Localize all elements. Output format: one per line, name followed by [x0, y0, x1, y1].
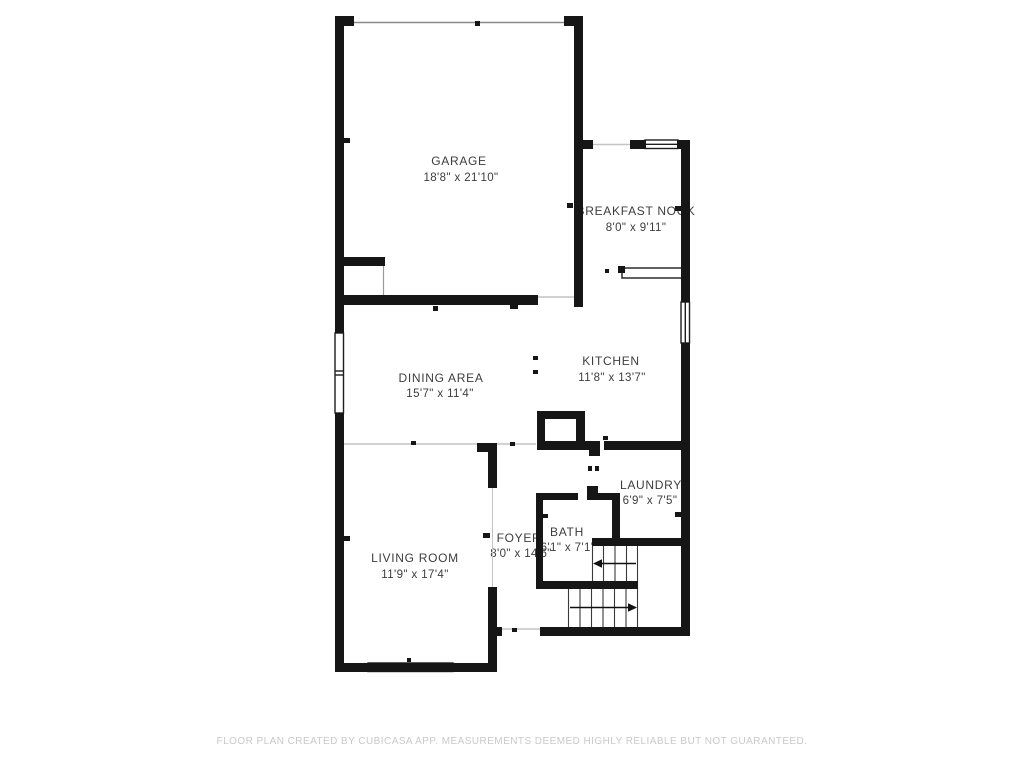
kitchen-south-wall — [604, 441, 690, 450]
tick-marker — [475, 21, 480, 26]
dining-label: DINING AREA — [398, 371, 483, 385]
wall-west — [335, 16, 344, 333]
laundry-south-wall — [592, 538, 690, 546]
living-south-wall — [335, 663, 497, 672]
tick-marker — [433, 306, 438, 311]
tick-marker — [563, 495, 567, 499]
tick-marker — [675, 206, 681, 211]
opening-lines — [344, 23, 630, 630]
tick-marker — [533, 356, 538, 360]
room-labels: GARAGE 18'8" x 21'10" BREAKFAST NOOK 8'0… — [371, 154, 695, 581]
tick-marker — [512, 628, 517, 632]
tick-marker — [510, 442, 515, 446]
tick-marker — [483, 533, 490, 538]
garage-dims: 18'8" x 21'10" — [423, 172, 498, 184]
door-hinge-dot — [595, 466, 599, 471]
bath-west-wall — [536, 493, 543, 588]
foyer-label: FOYER — [497, 531, 542, 545]
tick-marker — [648, 538, 653, 542]
dining-dims: 15'7" x 11'4" — [406, 388, 473, 400]
laundry-label: LAUNDRY — [620, 478, 682, 492]
nook-north-wall — [630, 140, 646, 149]
wall-east — [681, 140, 690, 302]
bath-east-wall — [612, 493, 620, 543]
tick-marker — [675, 512, 681, 517]
breakfast-nook-dims: 8'0" x 9'11" — [606, 222, 667, 234]
door-jamb — [587, 486, 598, 500]
pantry-wall — [537, 411, 545, 450]
garage-label: GARAGE — [431, 154, 487, 168]
laundry-dims: 6'9" x 7'5" — [623, 495, 678, 507]
tick-marker — [510, 304, 518, 309]
disclaimer-text: FLOOR PLAN CREATED BY CUBICASA APP. MEAS… — [0, 736, 1024, 747]
pantry-wall — [576, 411, 585, 443]
garage-closet-wall — [337, 257, 385, 266]
garage-east-wall — [574, 16, 583, 307]
bath-dims: 6'1" x 7'1" — [541, 542, 596, 554]
bath-north-wall — [598, 493, 620, 500]
tick-marker — [543, 514, 548, 518]
living-east-wall — [488, 587, 497, 672]
door-hinge-dot — [588, 466, 592, 471]
stair-arrow-left-icon — [593, 559, 602, 568]
bath-label: BATH — [550, 525, 584, 539]
tick-marker — [603, 436, 608, 440]
tick-marker — [605, 269, 609, 273]
garage-door-jamb — [335, 16, 354, 26]
living-room-label: LIVING ROOM — [371, 551, 459, 565]
kitchen-label: KITCHEN — [582, 354, 640, 368]
windows — [335, 140, 690, 672]
living-room-dims: 11'9" x 17'4" — [381, 569, 448, 581]
living-east-wall — [488, 443, 497, 488]
window — [335, 333, 344, 413]
kitchen-counter — [622, 268, 686, 278]
tick-marker — [411, 441, 416, 445]
tick-marker — [567, 203, 573, 208]
tick-marker — [344, 536, 350, 541]
wall-east — [681, 343, 690, 635]
tick-marker — [344, 138, 350, 143]
wall-south — [540, 627, 690, 636]
tick-marker — [407, 658, 411, 662]
kitchen-dims: 11'8" x 13'7" — [578, 372, 645, 384]
floor-plan-page: GARAGE 18'8" x 21'10" BREAKFAST NOOK 8'0… — [0, 0, 1024, 768]
counter-end-post — [618, 266, 625, 273]
stair-arrow-right-icon — [628, 603, 637, 612]
door-jamb — [589, 441, 600, 456]
nook-wall-stub — [583, 140, 593, 149]
bath-south-wall — [536, 581, 638, 589]
tick-marker — [533, 370, 538, 374]
garage-south-wall — [335, 295, 538, 305]
floor-plan-drawing: GARAGE 18'8" x 21'10" BREAKFAST NOOK 8'0… — [0, 0, 1024, 768]
wall-west — [335, 413, 344, 672]
